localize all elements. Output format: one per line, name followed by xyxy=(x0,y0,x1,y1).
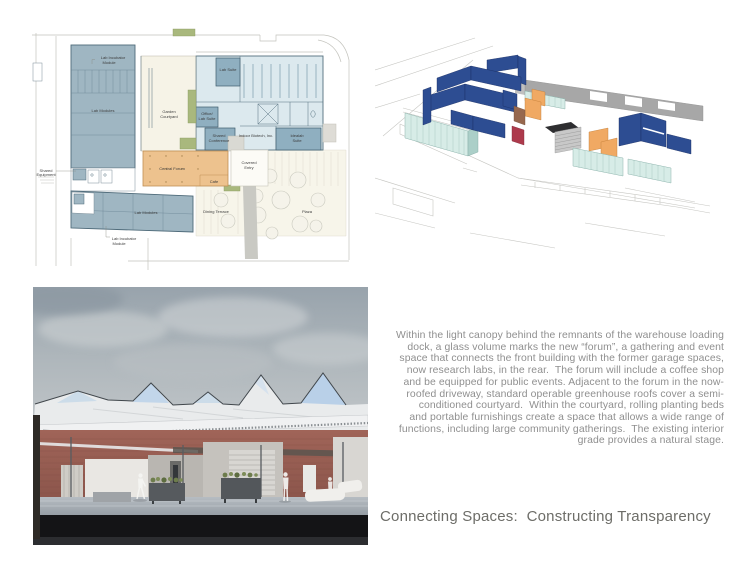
walkway-path xyxy=(243,186,258,259)
svg-text:Lab Suite: Lab Suite xyxy=(199,116,217,121)
svg-text:Module: Module xyxy=(112,241,126,246)
presentation-board: Lab Incubator Module Lab Modules Garden … xyxy=(0,0,737,569)
planting-strip xyxy=(188,90,196,123)
render-svg xyxy=(33,287,368,545)
axonometric-drawing xyxy=(375,28,723,266)
section-cut-left xyxy=(33,415,40,539)
label-cafe: Cafe xyxy=(210,179,219,184)
label-lab-modules-bottom: Lab Modules xyxy=(135,210,158,215)
label-lab-suite: Lab Suite xyxy=(220,67,238,72)
planting-strip xyxy=(180,138,196,149)
vestibule xyxy=(228,136,244,151)
room-lab-suite xyxy=(216,58,240,86)
basement-cut-2 xyxy=(33,537,368,545)
right-cluster xyxy=(573,113,691,183)
project-description: Within the light canopy behind the remna… xyxy=(396,330,724,447)
axon-svg xyxy=(375,28,723,266)
basement-cut xyxy=(33,515,368,537)
svg-text:Entry: Entry xyxy=(244,165,253,170)
planting-strip xyxy=(173,29,195,36)
svg-text:Courtyard: Courtyard xyxy=(160,114,178,119)
floor-plan-svg: Lab Incubator Module Lab Modules Garden … xyxy=(28,28,368,273)
label-lab-modules-left: Lab Modules xyxy=(92,108,115,113)
label-indoor-biotech: Indoor Biotech, Inc. xyxy=(239,133,273,138)
label-plaza: Plaza xyxy=(302,209,313,214)
label-central-forum: Central Forum xyxy=(159,166,185,171)
board-title: Connecting Spaces: Constructing Transpar… xyxy=(380,508,725,525)
svg-text:Module: Module xyxy=(102,60,116,65)
svg-text:Conference: Conference xyxy=(209,138,230,143)
label-dining-terrace: Dining Terrace xyxy=(203,209,229,214)
perspective-rendering xyxy=(33,287,368,545)
svg-text:Suite: Suite xyxy=(292,138,302,143)
floor-plan-drawing: Lab Incubator Module Lab Modules Garden … xyxy=(28,28,368,273)
side-tab xyxy=(323,124,336,142)
svg-text:Equipment: Equipment xyxy=(36,172,56,177)
